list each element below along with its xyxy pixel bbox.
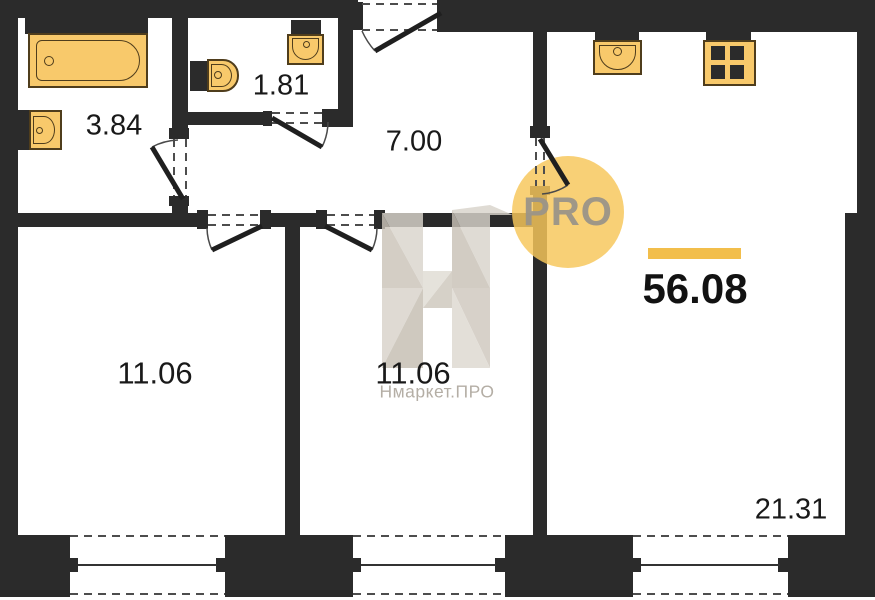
room-area-label-room-middle: 11.06: [375, 358, 450, 389]
total-area-accent-bar: [648, 248, 741, 259]
room-area-label-hallway: 7.00: [386, 128, 442, 157]
room-area-label-living-kitchen: 21.31: [755, 496, 828, 525]
room-area-label-room-left: 11.06: [117, 358, 192, 389]
floor-plan: Нмаркет.ПРО PRO: [0, 0, 875, 600]
room-area-label-bathroom: 3.84: [86, 112, 142, 141]
room-area-label-toilet: 1.81: [253, 72, 309, 101]
total-area-label: 56.08: [642, 268, 747, 310]
